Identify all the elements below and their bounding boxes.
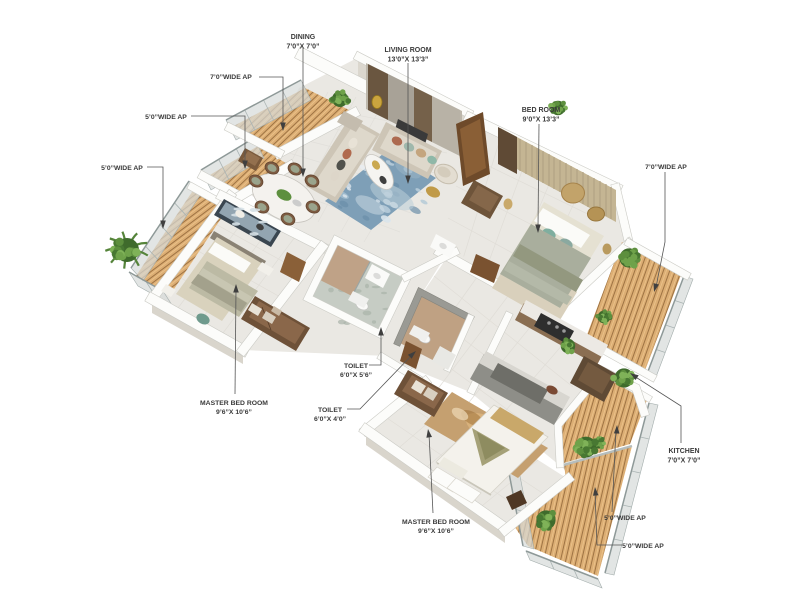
svg-text:5’0”WIDE AP: 5’0”WIDE AP [604,515,646,522]
svg-text:7’0”WIDE AP: 7’0”WIDE AP [210,74,252,81]
svg-text:5’0”WIDE AP: 5’0”WIDE AP [622,543,664,550]
svg-text:5’0”WIDE AP: 5’0”WIDE AP [101,165,143,172]
svg-text:7’0”WIDE AP: 7’0”WIDE AP [645,164,687,171]
svg-text:5’0”WIDE AP: 5’0”WIDE AP [145,114,187,121]
